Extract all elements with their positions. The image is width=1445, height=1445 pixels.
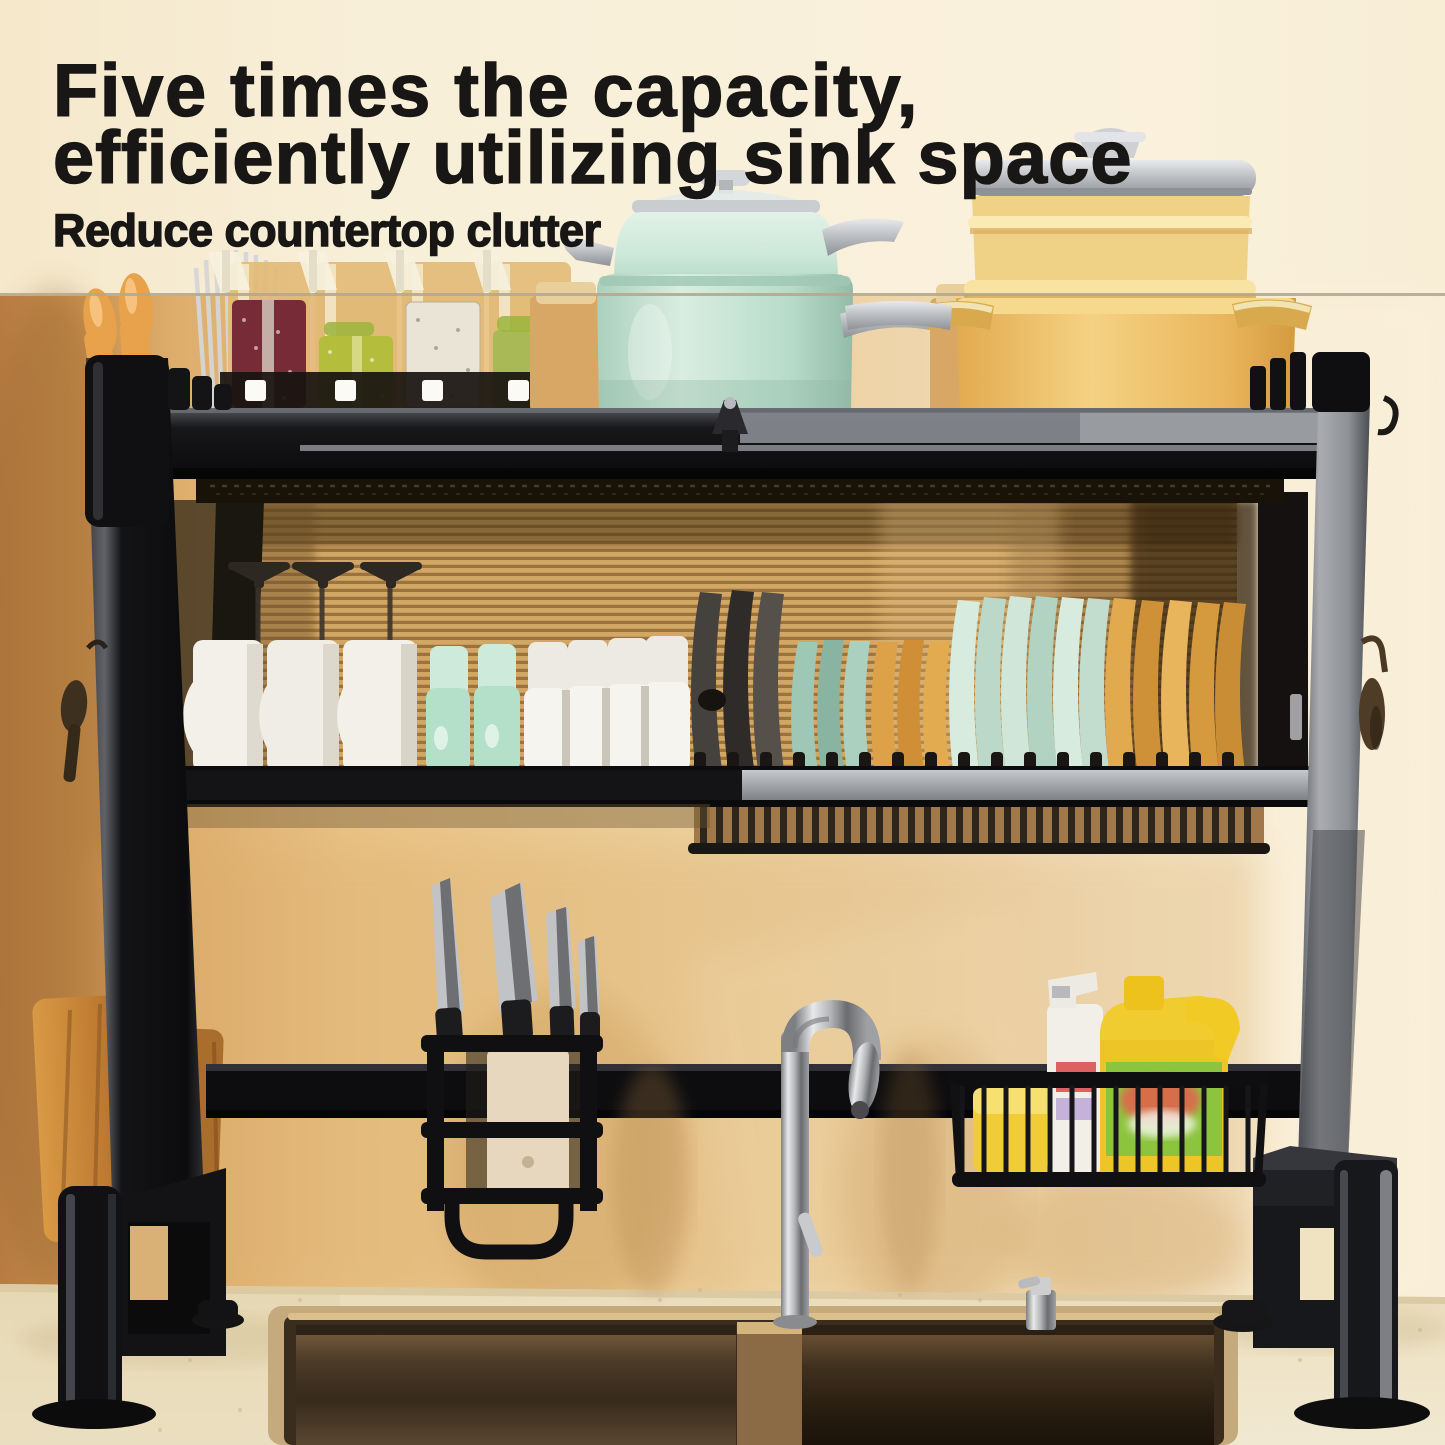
- svg-text:efficiently utilizing sink spa: efficiently utilizing sink space: [53, 116, 1133, 199]
- svg-text:Reduce countertop clutter: Reduce countertop clutter: [53, 205, 601, 256]
